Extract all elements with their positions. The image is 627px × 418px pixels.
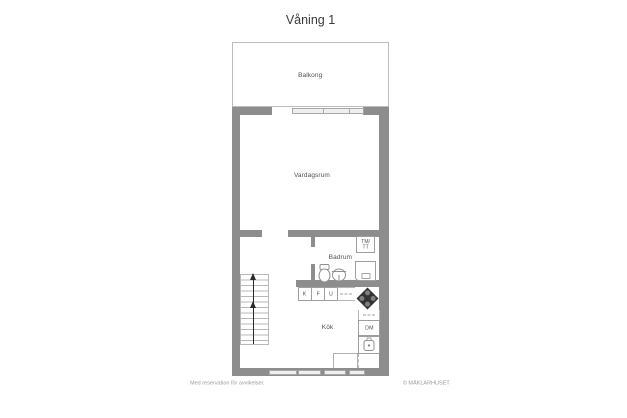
counter-box-below-stove [358,310,380,320]
kitchen-island [333,353,358,368]
stairs-arrow-line [253,277,254,344]
toilet-icon [317,264,332,283]
stairs-arrow-up-icon [250,301,256,308]
window-bottom-3 [324,370,346,375]
wall-bathroom-left-upper [311,237,315,247]
window-divider [349,109,350,113]
bathroom-label: Badrum [328,253,351,261]
living-room-label: Vardagsrum [294,170,330,178]
kitchen-label: Kök [322,322,334,330]
freezer-box: F [311,287,325,301]
wall-top-right [363,107,389,115]
counter-dashed-line [340,294,352,295]
wall-bathroom-left-lower [311,264,315,281]
kitchen-label-box: Kök [300,320,356,332]
living-room-label-box: Vardagsrum [262,168,362,180]
wall-middle-left [232,230,262,237]
counter-dashed-line [363,315,375,316]
wall-left [232,107,240,376]
balcony-area: Balkong [232,42,389,107]
page-title: Våning 1 [232,13,389,29]
shower-icon [355,261,376,281]
counter-dashed-segment [358,354,380,368]
wall-right [379,107,389,376]
counter-dashed-box [337,287,355,301]
dishwasher-box: DM [358,320,380,336]
window-top [292,108,364,114]
washer-dryer-label: TM/ TT [361,239,370,250]
window-bottom-1 [269,370,297,375]
window-divider [323,109,324,113]
oven-label: U [329,291,333,297]
balcony-label: Balkong [298,71,322,79]
oven-box: U [324,287,338,301]
window-bottom-2 [298,370,321,375]
dishwasher-label: DM [365,325,373,331]
kitchen-sink-icon [359,337,379,353]
stove-icon [356,287,379,310]
fridge-box: K [298,287,312,301]
staircase [240,274,269,345]
freezer-label: F [316,291,319,297]
kitchen-sink-box [358,336,380,354]
shower-drain-icon [361,273,370,279]
wall-top-left [232,107,272,115]
window-bottom-4 [349,370,365,375]
stairs-arrow-up-icon [250,273,256,280]
fridge-label: K [303,291,307,297]
washbasin-icon [331,267,347,282]
footer-brand: © MÄKLARHUSET [290,378,450,388]
